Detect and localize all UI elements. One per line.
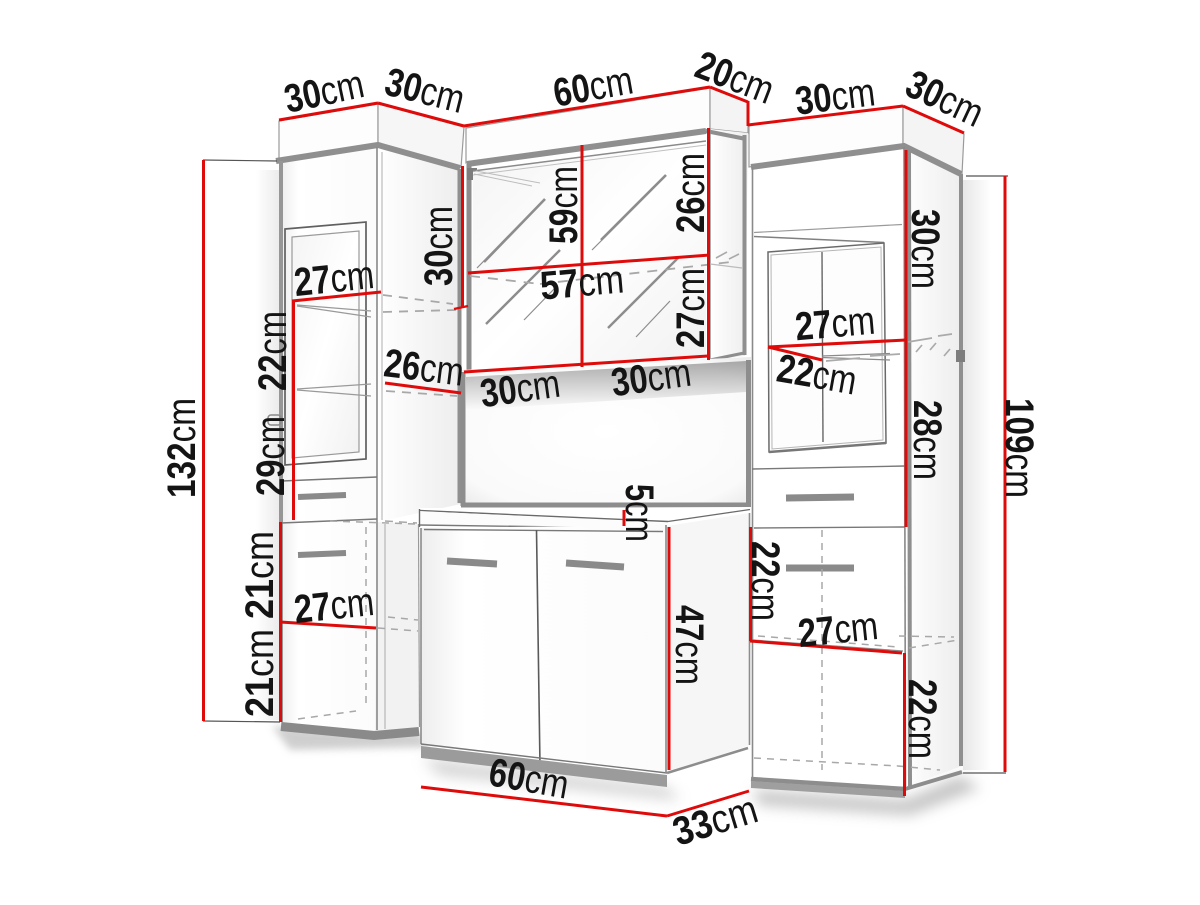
svg-text:27cm: 27cm bbox=[292, 580, 376, 632]
svg-text:109cm: 109cm bbox=[997, 398, 1041, 498]
svg-text:27cm: 27cm bbox=[793, 299, 877, 350]
svg-text:21cm: 21cm bbox=[238, 531, 282, 619]
svg-text:132cm: 132cm bbox=[160, 398, 204, 498]
svg-text:57cm: 57cm bbox=[538, 257, 626, 308]
svg-text:59cm: 59cm bbox=[542, 166, 586, 244]
svg-text:26cm: 26cm bbox=[669, 153, 713, 233]
svg-text:27cm: 27cm bbox=[292, 253, 376, 305]
svg-text:30cm: 30cm bbox=[903, 209, 947, 289]
svg-text:27cm: 27cm bbox=[796, 604, 880, 656]
svg-text:30cm: 30cm bbox=[417, 206, 461, 286]
svg-text:47cm: 47cm bbox=[667, 605, 711, 685]
svg-text:28cm: 28cm bbox=[905, 400, 949, 480]
svg-text:22cm: 22cm bbox=[743, 541, 787, 621]
svg-text:29cm: 29cm bbox=[249, 416, 293, 496]
svg-text:27cm: 27cm bbox=[669, 268, 713, 348]
svg-text:5cm: 5cm bbox=[617, 484, 661, 542]
svg-text:22cm: 22cm bbox=[900, 679, 944, 759]
svg-text:22cm: 22cm bbox=[251, 311, 295, 391]
svg-text:21cm: 21cm bbox=[238, 629, 282, 717]
